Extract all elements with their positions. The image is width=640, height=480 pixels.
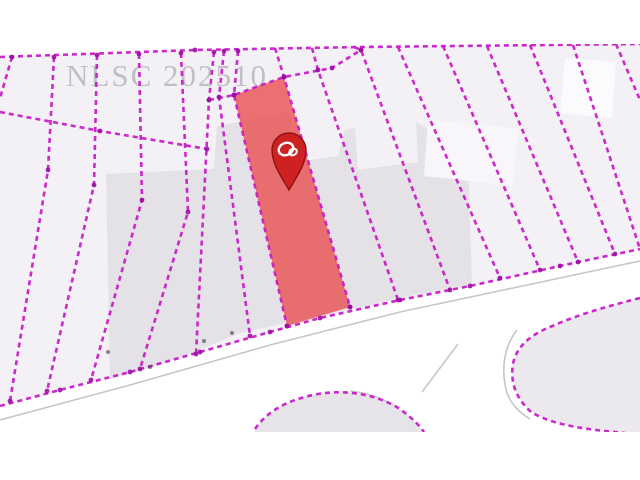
- parcel-annotation-mark: [106, 350, 110, 354]
- parcel-vertex-dot: [207, 98, 212, 103]
- parcel-vertex-dot: [232, 93, 237, 98]
- road-edge-line: [422, 344, 458, 392]
- parcel-vertex-dot: [222, 49, 227, 54]
- parcel-annotation-mark: [202, 339, 206, 343]
- map-window: NLSC 202510: [0, 0, 640, 480]
- parcel-vertex-dot: [140, 198, 145, 203]
- parcel-vertex-dot: [217, 95, 222, 100]
- parcel-vertex-dot: [468, 284, 473, 289]
- parcel-vertex-dot: [186, 210, 191, 215]
- parcel-vertex-dot: [576, 260, 581, 265]
- parcel-annotation-mark: [230, 331, 234, 335]
- parcel-vertex-dot: [193, 48, 198, 53]
- parcel-vertex-dot: [236, 49, 241, 54]
- parcel-vertex-dot: [89, 378, 94, 383]
- parcel-vertex-dot: [92, 183, 97, 188]
- parcel-vertex-dot: [179, 51, 184, 56]
- parcel-vertex-dot: [212, 50, 217, 55]
- parcel-vertex-dot: [330, 66, 335, 71]
- corner-parcel-middle: [255, 392, 424, 433]
- parcel-annotation-mark: [148, 365, 152, 369]
- corner-parcel-right: [512, 298, 640, 433]
- parcel-vertex-dot: [58, 388, 63, 393]
- parcel-vertex-dot: [285, 324, 290, 329]
- parcel-vertex-dot: [138, 367, 143, 372]
- parcel-vertex-dot: [137, 52, 142, 57]
- parcel-vertex-dot: [282, 75, 287, 80]
- parcel-vertex-dot: [205, 147, 210, 152]
- parcel-vertex-dot: [45, 389, 50, 394]
- parcel-vertex-dot: [448, 288, 453, 293]
- parcel-vertex-dot: [348, 305, 353, 310]
- cadastral-map-canvas[interactable]: NLSC 202510: [0, 0, 640, 480]
- parcel-gray-area: [424, 120, 518, 186]
- parcel-vertex-dot: [359, 48, 364, 53]
- parcel-vertex-dot: [95, 53, 100, 58]
- parcel-vertex-dot: [613, 252, 618, 257]
- parcel-vertex-dot: [538, 268, 543, 273]
- parcel-vertex-dot: [498, 276, 503, 281]
- parcel-vertex-dot: [316, 68, 321, 73]
- parcel-vertex-dot: [248, 334, 253, 339]
- parcel-vertex-dot: [128, 370, 133, 375]
- parcel-vertex-dot: [268, 330, 273, 335]
- parcel-vertex-dot: [8, 399, 13, 404]
- parcel-vertex-dot: [10, 55, 15, 60]
- parcel-vertex-dot: [318, 316, 323, 321]
- parcel-vertex-dot: [558, 264, 563, 269]
- parcel-vertex-dot: [396, 298, 401, 303]
- parcel-vertex-dot: [98, 129, 103, 134]
- parcel-vertex-dot: [52, 55, 57, 60]
- parcel-vertex-dot: [46, 168, 51, 173]
- parcel-vertex-dot: [194, 352, 199, 357]
